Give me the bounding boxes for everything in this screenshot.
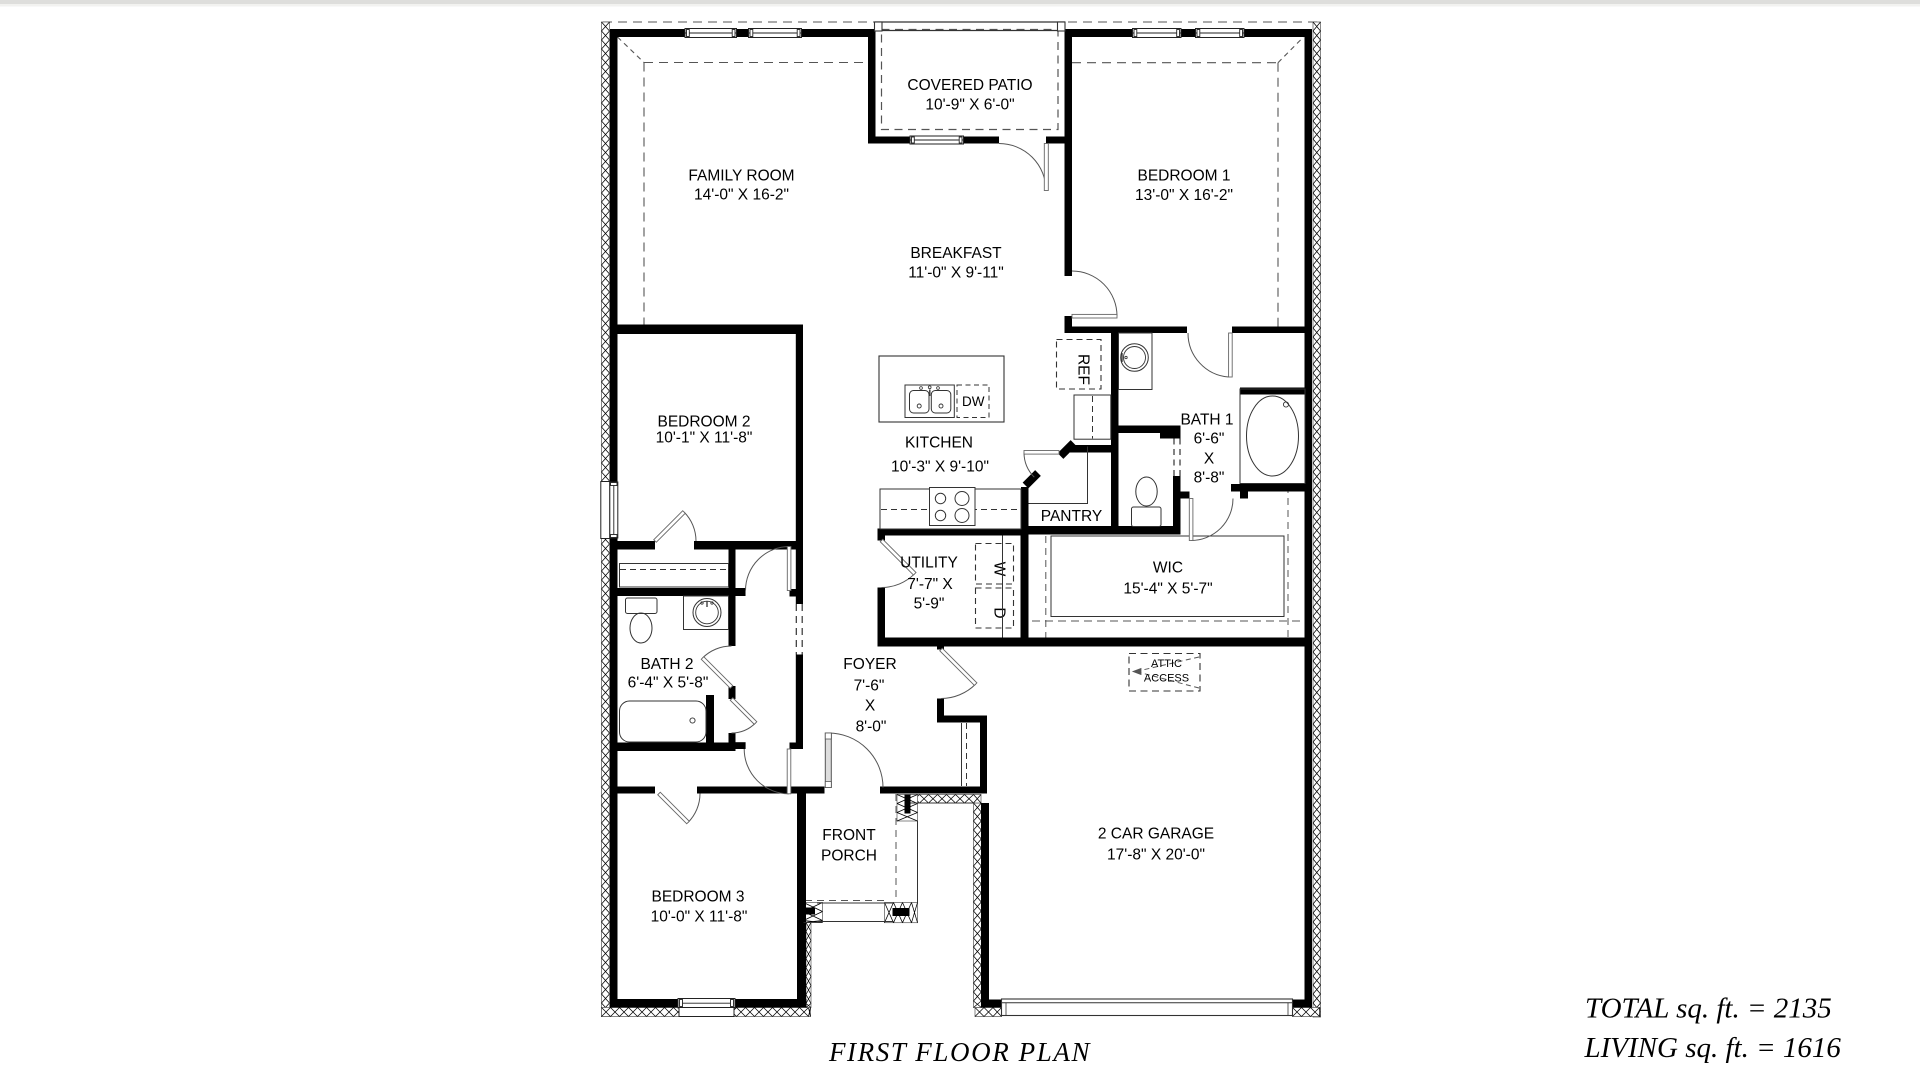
svg-text:PANTRY: PANTRY (1041, 508, 1102, 525)
svg-text:17'-8" X 20'-0": 17'-8" X 20'-0" (1107, 847, 1205, 864)
svg-text:W: W (991, 562, 1008, 577)
svg-text:BATH 1: BATH 1 (1180, 412, 1233, 429)
svg-text:8'-8": 8'-8" (1194, 470, 1225, 487)
svg-text:FAMILY ROOM: FAMILY ROOM (688, 168, 794, 185)
svg-text:X: X (865, 698, 876, 715)
svg-text:5'-9": 5'-9" (914, 596, 945, 613)
svg-text:BREAKFAST: BREAKFAST (910, 245, 1002, 262)
svg-text:BEDROOM 1: BEDROOM 1 (1137, 168, 1230, 185)
svg-text:UTILITY: UTILITY (900, 555, 958, 572)
svg-text:LIVING sq. ft. = 1616: LIVING sq. ft. = 1616 (1584, 1032, 1842, 1064)
svg-text:10'-9" X 6'-0": 10'-9" X 6'-0" (925, 97, 1014, 114)
svg-text:WIC: WIC (1153, 560, 1183, 577)
svg-text:11'-0" X 9'-11": 11'-0" X 9'-11" (908, 265, 1004, 282)
svg-text:BEDROOM 2: BEDROOM 2 (657, 414, 750, 431)
svg-text:D: D (991, 607, 1008, 618)
svg-text:REF: REF (1075, 354, 1092, 385)
svg-text:10'-1" X 11'-8": 10'-1" X 11'-8" (656, 430, 753, 447)
svg-text:BEDROOM 3: BEDROOM 3 (651, 889, 744, 906)
svg-text:8'-0": 8'-0" (856, 719, 887, 736)
svg-text:ACCESS: ACCESS (1144, 673, 1189, 685)
svg-text:FRONT: FRONT (822, 827, 876, 844)
svg-text:ATTIC: ATTIC (1151, 658, 1182, 670)
svg-text:10'-0" X 11'-8": 10'-0" X 11'-8" (651, 909, 748, 926)
svg-text:7'-6": 7'-6" (854, 678, 885, 695)
svg-text:10'-3" X 9'-10": 10'-3" X 9'-10" (891, 459, 989, 476)
svg-text:DW: DW (962, 394, 985, 409)
svg-text:X: X (1204, 451, 1215, 468)
svg-text:13'-0" X 16'-2": 13'-0" X 16'-2" (1135, 187, 1233, 204)
svg-text:FIRST FLOOR PLAN: FIRST FLOOR PLAN (828, 1037, 1092, 1067)
svg-text:7'-7" X: 7'-7" X (907, 576, 953, 593)
svg-text:KITCHEN: KITCHEN (905, 435, 973, 452)
svg-text:FOYER: FOYER (843, 656, 896, 673)
svg-text:2 CAR GARAGE: 2 CAR GARAGE (1098, 826, 1214, 843)
svg-text:TOTAL sq. ft. = 2135: TOTAL sq. ft. = 2135 (1585, 993, 1832, 1025)
svg-text:PORCH: PORCH (821, 848, 877, 865)
svg-text:BATH 2: BATH 2 (640, 656, 693, 673)
svg-text:6'-6": 6'-6" (1194, 431, 1225, 448)
svg-text:14'-0" X 16-2": 14'-0" X 16-2" (694, 187, 789, 204)
svg-text:6'-4" X 5'-8": 6'-4" X 5'-8" (628, 675, 709, 692)
svg-text:COVERED PATIO: COVERED PATIO (907, 77, 1032, 94)
svg-text:15'-4" X 5'-7": 15'-4" X 5'-7" (1123, 581, 1212, 598)
